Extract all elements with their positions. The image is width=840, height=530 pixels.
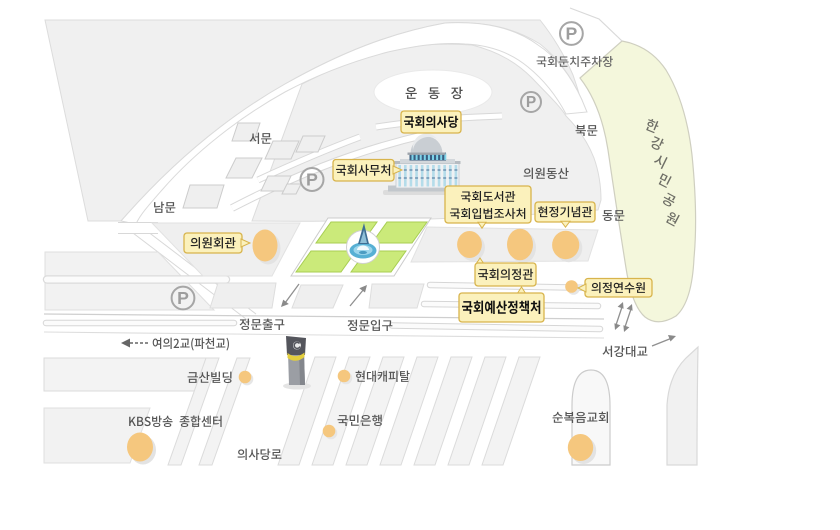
svg-text:P: P — [526, 94, 536, 111]
svg-text:P: P — [177, 288, 189, 308]
svg-text:P: P — [306, 169, 318, 189]
svg-text:P: P — [566, 23, 578, 43]
